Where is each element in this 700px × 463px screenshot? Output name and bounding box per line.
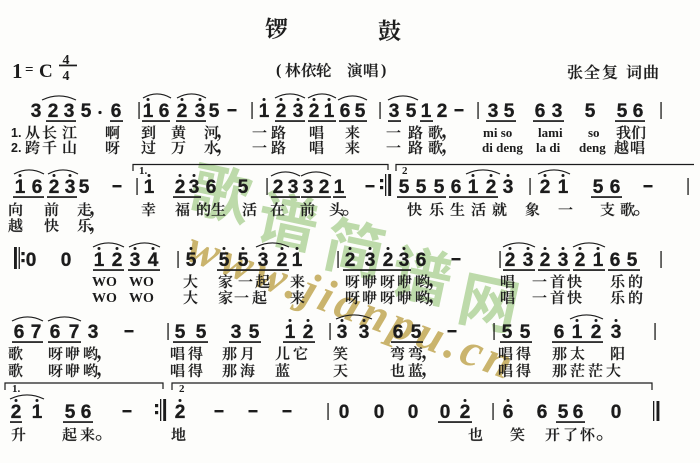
svg-text:1.: 1. xyxy=(12,383,21,395)
svg-text:7: 7 xyxy=(31,322,42,343)
svg-text:2: 2 xyxy=(402,165,408,177)
svg-text:1: 1 xyxy=(144,177,155,198)
svg-text:2: 2 xyxy=(345,250,356,271)
svg-text:3: 3 xyxy=(231,322,242,343)
svg-text:2: 2 xyxy=(319,177,330,198)
svg-text:1: 1 xyxy=(558,177,569,198)
svg-text:1: 1 xyxy=(94,250,105,271)
svg-text:5: 5 xyxy=(502,322,513,343)
svg-text:5: 5 xyxy=(238,250,249,271)
svg-text:3: 3 xyxy=(552,101,563,122)
svg-text:6: 6 xyxy=(554,322,565,343)
svg-text:3: 3 xyxy=(189,177,200,198)
svg-text:5: 5 xyxy=(593,177,604,198)
svg-text:5: 5 xyxy=(219,250,230,271)
svg-text:2: 2 xyxy=(11,402,22,423)
svg-text:2: 2 xyxy=(175,402,186,423)
svg-text:6: 6 xyxy=(32,177,43,198)
svg-text:5: 5 xyxy=(355,101,366,122)
svg-text:2: 2 xyxy=(575,250,586,271)
svg-text:3: 3 xyxy=(31,101,42,122)
svg-text:3: 3 xyxy=(64,101,75,122)
svg-text:2: 2 xyxy=(177,101,188,122)
svg-text:6: 6 xyxy=(340,101,351,122)
svg-text:la di: la di xyxy=(536,140,561,155)
svg-text:2: 2 xyxy=(460,402,471,423)
svg-text:3: 3 xyxy=(365,250,376,271)
svg-text:2: 2 xyxy=(49,177,60,198)
svg-text:5: 5 xyxy=(186,250,197,271)
svg-text:6: 6 xyxy=(159,101,170,122)
svg-text:6: 6 xyxy=(50,322,61,343)
svg-text:2: 2 xyxy=(437,101,448,122)
svg-text:2: 2 xyxy=(383,250,394,271)
svg-text:6: 6 xyxy=(537,402,548,423)
svg-text:2: 2 xyxy=(179,383,185,395)
svg-text:0: 0 xyxy=(440,402,451,423)
svg-text:1: 1 xyxy=(334,177,345,198)
svg-text:5: 5 xyxy=(504,101,515,122)
svg-text:deng: deng xyxy=(579,140,606,155)
svg-text:lami: lami xyxy=(538,125,563,140)
svg-text:): ) xyxy=(381,62,386,79)
svg-text:=: = xyxy=(25,62,34,78)
svg-text:1: 1 xyxy=(593,250,604,271)
svg-text:5: 5 xyxy=(617,101,628,122)
svg-text:2: 2 xyxy=(540,177,551,198)
svg-text:1: 1 xyxy=(15,177,26,198)
svg-text:1.: 1. xyxy=(11,126,21,140)
svg-text:2: 2 xyxy=(309,101,320,122)
svg-text:2: 2 xyxy=(276,101,287,122)
svg-text:5: 5 xyxy=(406,101,417,122)
svg-text:3: 3 xyxy=(88,322,99,343)
svg-text:2: 2 xyxy=(540,250,551,271)
svg-text:1: 1 xyxy=(292,250,303,271)
svg-text:3: 3 xyxy=(389,101,400,122)
svg-text:5: 5 xyxy=(399,177,410,198)
svg-text:3: 3 xyxy=(195,101,206,122)
svg-text:3: 3 xyxy=(65,177,76,198)
svg-text:2: 2 xyxy=(486,177,497,198)
svg-text:WO: WO xyxy=(129,275,154,290)
svg-text:6: 6 xyxy=(610,177,621,198)
svg-text:1: 1 xyxy=(259,101,270,122)
svg-text:3: 3 xyxy=(488,101,499,122)
svg-text:3: 3 xyxy=(258,250,269,271)
svg-text:1: 1 xyxy=(421,101,432,122)
svg-text:WO: WO xyxy=(92,291,117,306)
svg-text:6: 6 xyxy=(416,250,427,271)
svg-text:3: 3 xyxy=(503,177,514,198)
svg-text:mi so: mi so xyxy=(483,125,512,140)
svg-text:0: 0 xyxy=(26,250,37,271)
svg-text:2: 2 xyxy=(175,177,186,198)
svg-text:5: 5 xyxy=(434,177,445,198)
svg-text:C: C xyxy=(39,61,53,82)
svg-text:2: 2 xyxy=(273,177,284,198)
svg-text:6: 6 xyxy=(610,250,621,271)
svg-text:0: 0 xyxy=(339,402,350,423)
svg-text:2: 2 xyxy=(505,250,516,271)
svg-text:1: 1 xyxy=(32,402,43,423)
svg-text:1: 1 xyxy=(572,322,583,343)
svg-text:5: 5 xyxy=(558,402,569,423)
svg-text:so: so xyxy=(588,125,600,140)
svg-text:WO: WO xyxy=(129,291,154,306)
svg-text:6: 6 xyxy=(633,101,644,122)
svg-text:6: 6 xyxy=(111,101,122,122)
svg-text:1: 1 xyxy=(12,59,23,83)
svg-text:2: 2 xyxy=(112,250,123,271)
svg-text:5: 5 xyxy=(520,322,531,343)
svg-text:6: 6 xyxy=(14,322,25,343)
svg-text:5: 5 xyxy=(416,177,427,198)
svg-text:WO: WO xyxy=(92,275,117,290)
svg-text:6: 6 xyxy=(503,402,514,423)
svg-text:6: 6 xyxy=(451,177,462,198)
svg-text:0: 0 xyxy=(374,402,385,423)
svg-text:5: 5 xyxy=(585,101,596,122)
svg-text:4: 4 xyxy=(148,250,159,271)
svg-text:1.: 1. xyxy=(139,165,148,177)
svg-text:5: 5 xyxy=(196,322,207,343)
svg-text:3: 3 xyxy=(359,322,370,343)
svg-text:6: 6 xyxy=(81,402,92,423)
svg-text:5: 5 xyxy=(627,250,638,271)
svg-text:1: 1 xyxy=(468,177,479,198)
svg-text:5: 5 xyxy=(411,322,422,343)
svg-text:4: 4 xyxy=(63,69,70,84)
svg-text:2: 2 xyxy=(303,322,314,343)
svg-text:5: 5 xyxy=(65,402,76,423)
svg-text:3: 3 xyxy=(337,322,348,343)
svg-text:5: 5 xyxy=(175,322,186,343)
svg-text:3: 3 xyxy=(611,322,622,343)
svg-text:1: 1 xyxy=(285,322,296,343)
svg-text:3: 3 xyxy=(523,250,534,271)
svg-text:0: 0 xyxy=(611,402,622,423)
svg-text:6: 6 xyxy=(573,402,584,423)
svg-text:3: 3 xyxy=(558,250,569,271)
svg-text:3: 3 xyxy=(399,250,410,271)
svg-text:0: 0 xyxy=(408,402,419,423)
svg-text:1: 1 xyxy=(324,101,335,122)
svg-text:(: ( xyxy=(276,62,281,79)
svg-text:3: 3 xyxy=(288,177,299,198)
svg-text:1: 1 xyxy=(143,101,154,122)
svg-text:5: 5 xyxy=(209,101,220,122)
svg-text:3: 3 xyxy=(303,177,314,198)
svg-text:6: 6 xyxy=(535,101,546,122)
svg-text:5: 5 xyxy=(238,177,249,198)
svg-text:5: 5 xyxy=(81,101,92,122)
svg-text:0: 0 xyxy=(61,250,72,271)
svg-text:5: 5 xyxy=(249,322,260,343)
svg-text:2: 2 xyxy=(591,322,602,343)
svg-text:7: 7 xyxy=(69,322,80,343)
svg-text:6: 6 xyxy=(393,322,404,343)
svg-text:3: 3 xyxy=(130,250,141,271)
svg-text:2: 2 xyxy=(277,250,288,271)
svg-text:di deng: di deng xyxy=(482,140,523,155)
svg-text:5: 5 xyxy=(79,177,90,198)
svg-text:2: 2 xyxy=(48,101,59,122)
svg-text:6: 6 xyxy=(206,177,217,198)
svg-text:2.: 2. xyxy=(11,141,21,155)
svg-text:3: 3 xyxy=(293,101,304,122)
